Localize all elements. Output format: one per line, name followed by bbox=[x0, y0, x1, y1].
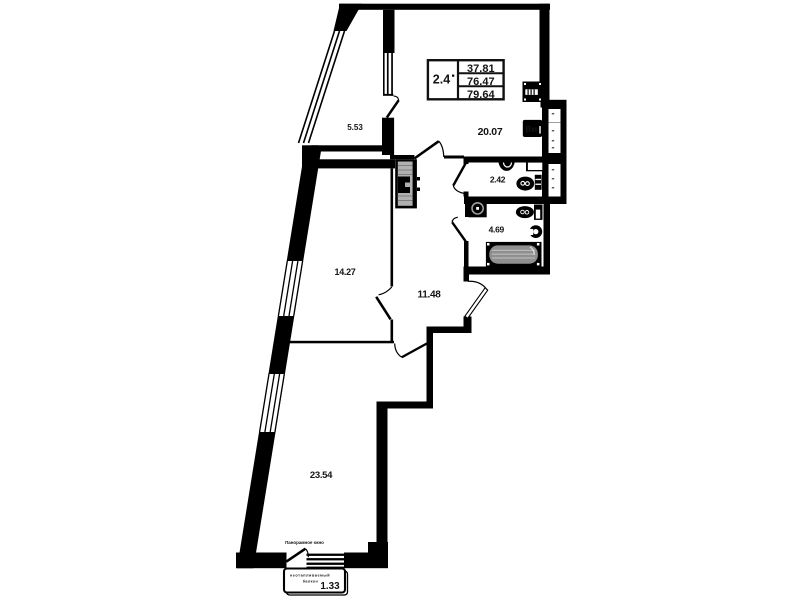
svg-text:20.07: 20.07 bbox=[478, 126, 503, 138]
svg-text:23.54: 23.54 bbox=[310, 470, 333, 481]
svg-text:76.47: 76.47 bbox=[467, 76, 495, 88]
svg-text:Вм: Вм bbox=[526, 125, 538, 134]
svg-text:1.33: 1.33 bbox=[320, 581, 340, 592]
svg-text:Панорамное окно: Панорамное окно bbox=[285, 540, 324, 545]
svg-text:14.27: 14.27 bbox=[334, 267, 355, 277]
svg-text:2.4: 2.4 bbox=[433, 73, 450, 87]
svg-text:37.81: 37.81 bbox=[467, 63, 495, 75]
svg-text:4.69: 4.69 bbox=[489, 224, 505, 234]
svg-text:5.53: 5.53 bbox=[347, 123, 363, 132]
svg-text:2.42: 2.42 bbox=[490, 175, 506, 185]
svg-text:неотапливаемый: неотапливаемый bbox=[290, 573, 330, 577]
svg-text:11.48: 11.48 bbox=[418, 290, 442, 301]
svg-text:79.64: 79.64 bbox=[467, 89, 495, 101]
svg-text:балкон: балкон bbox=[303, 579, 318, 583]
